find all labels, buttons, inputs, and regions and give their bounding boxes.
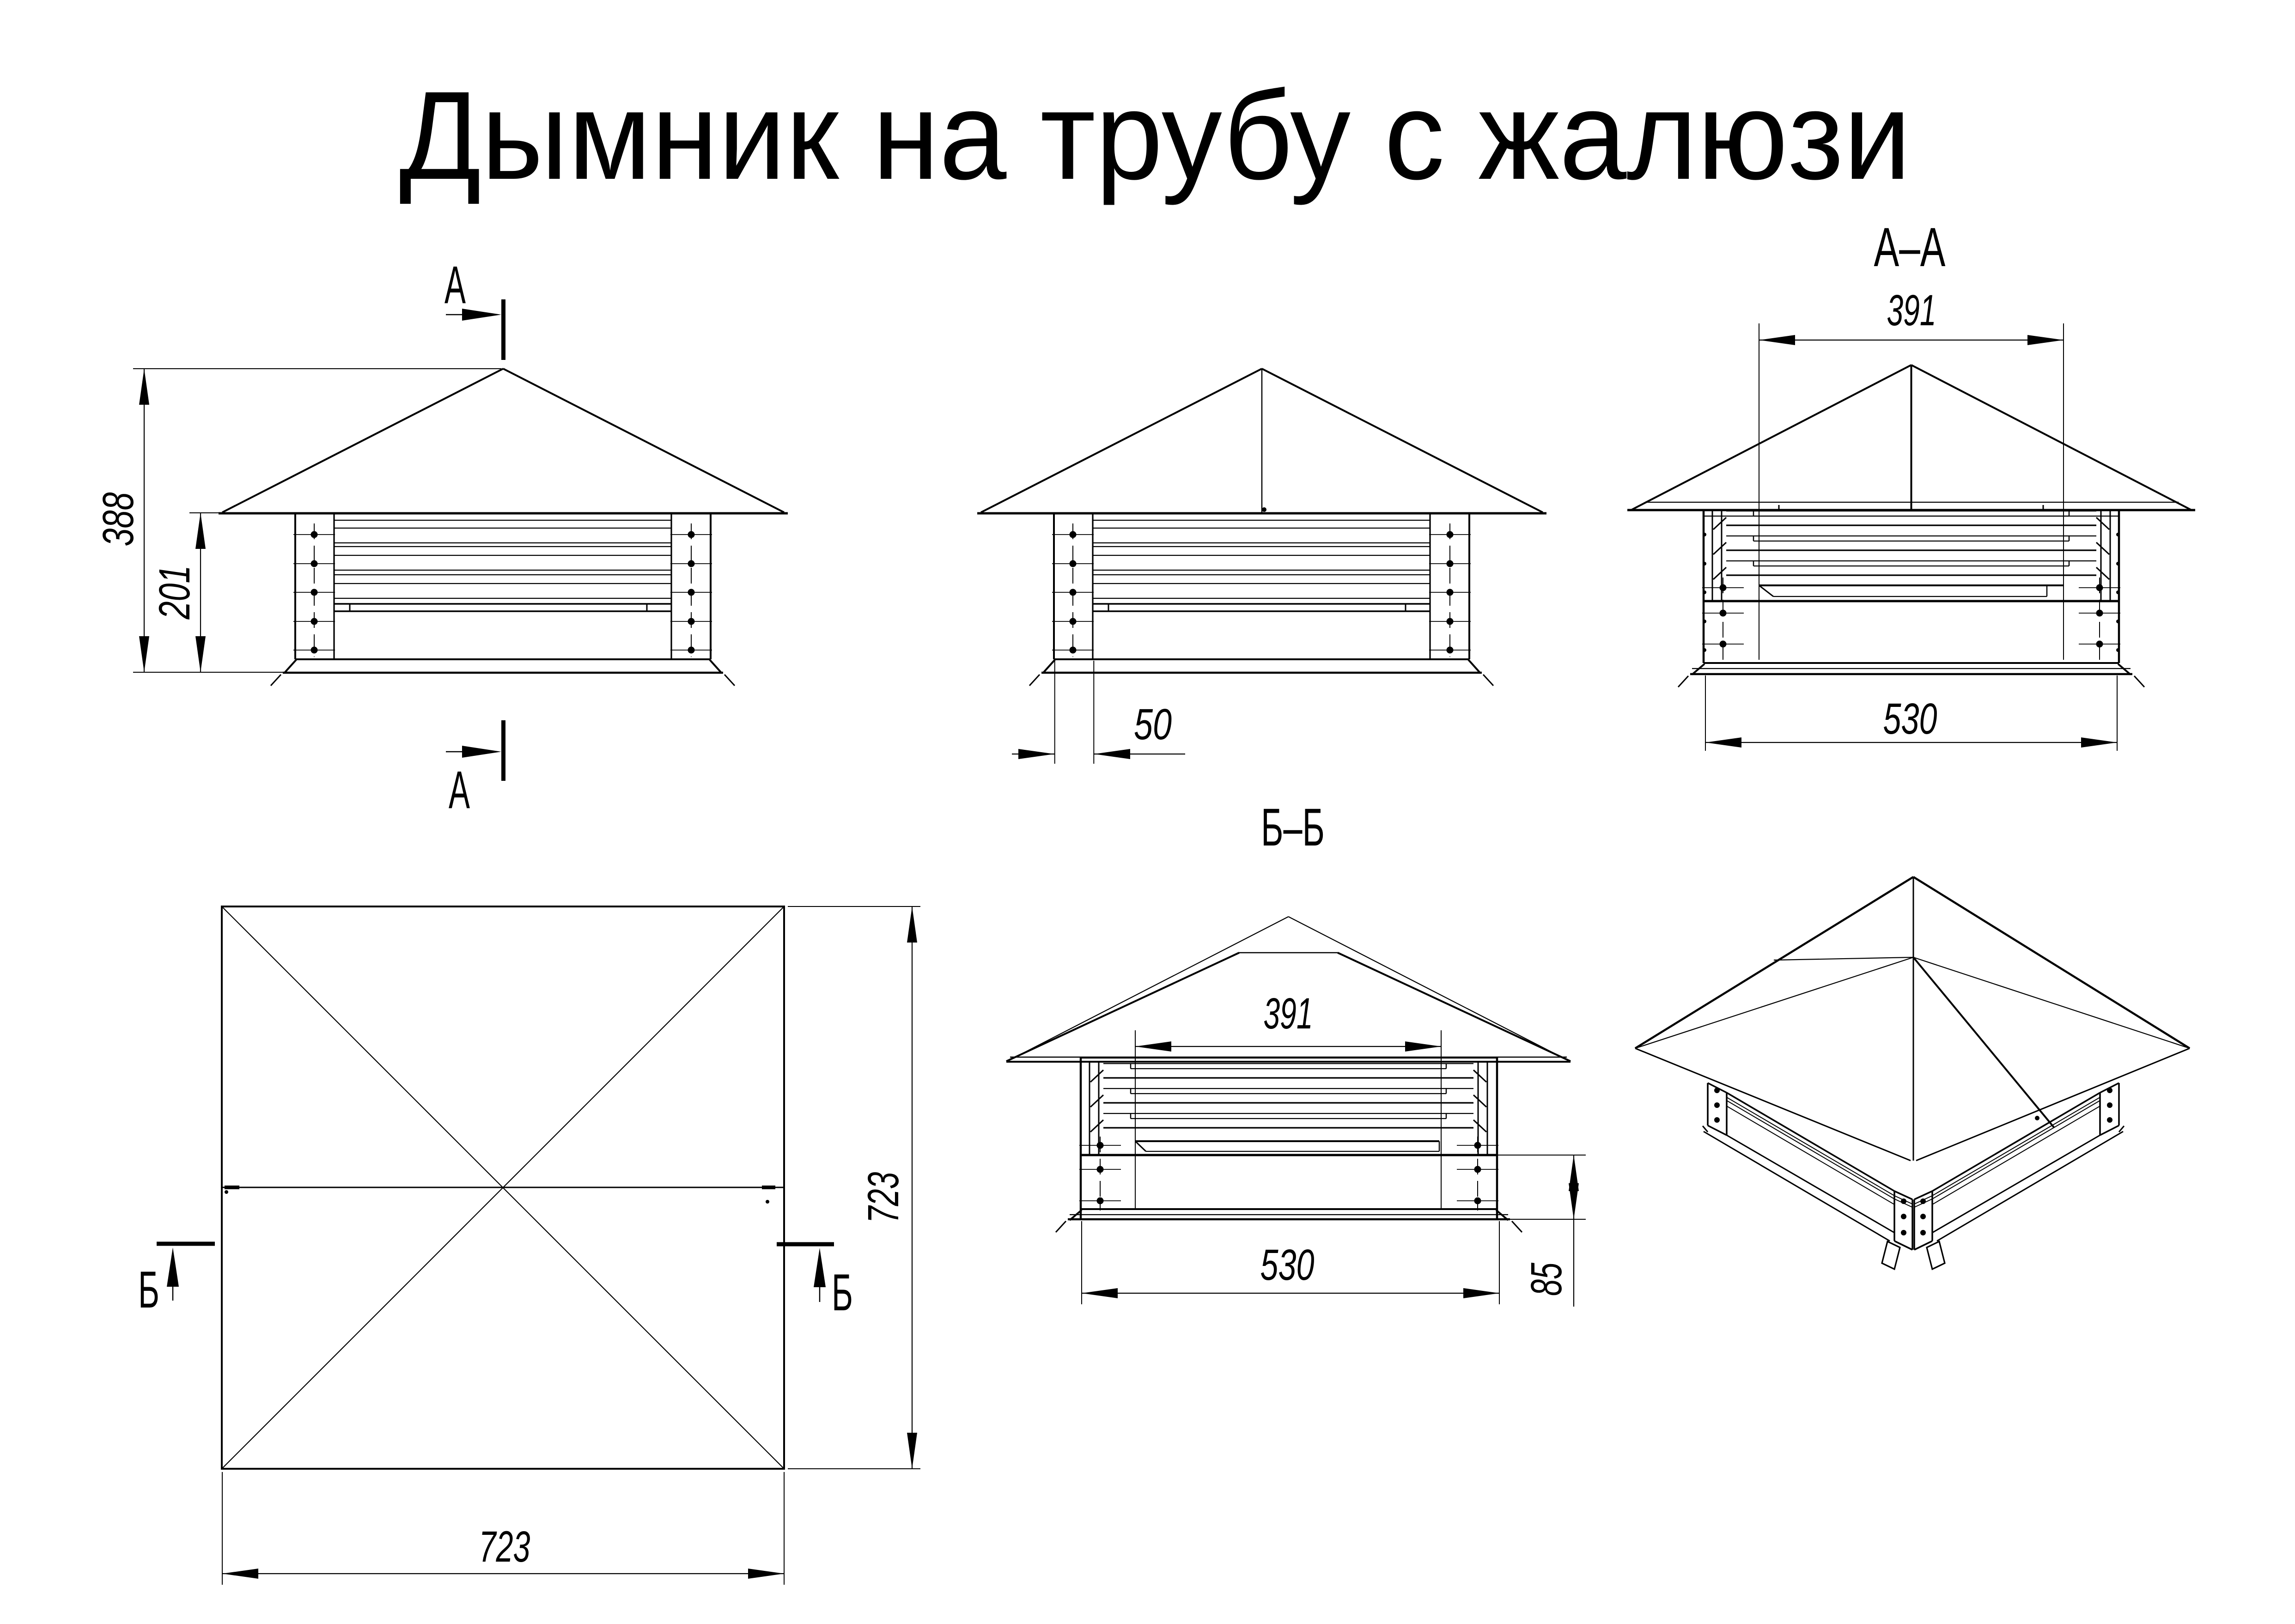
svg-text:Дымник на трубу с жалюзи: Дымник на трубу с жалюзи	[399, 65, 1911, 206]
svg-text:A: A	[444, 255, 466, 315]
svg-text:50: 50	[1134, 700, 1172, 749]
svg-text:A: A	[449, 760, 470, 820]
svg-text:391: 391	[1264, 989, 1313, 1038]
svg-text:Б–Б: Б–Б	[1261, 798, 1325, 857]
svg-text:530: 530	[1883, 694, 1937, 743]
svg-text:530: 530	[1260, 1241, 1315, 1289]
svg-text:85: 85	[1522, 1262, 1571, 1296]
svg-text:723: 723	[859, 1172, 908, 1223]
svg-text:201: 201	[150, 566, 199, 620]
svg-text:Б: Б	[832, 1264, 853, 1321]
svg-text:388: 388	[94, 492, 143, 546]
svg-text:391: 391	[1887, 286, 1936, 335]
svg-text:723: 723	[479, 1522, 530, 1571]
svg-text:Б: Б	[138, 1261, 159, 1319]
svg-text:А–А: А–А	[1874, 216, 1946, 278]
